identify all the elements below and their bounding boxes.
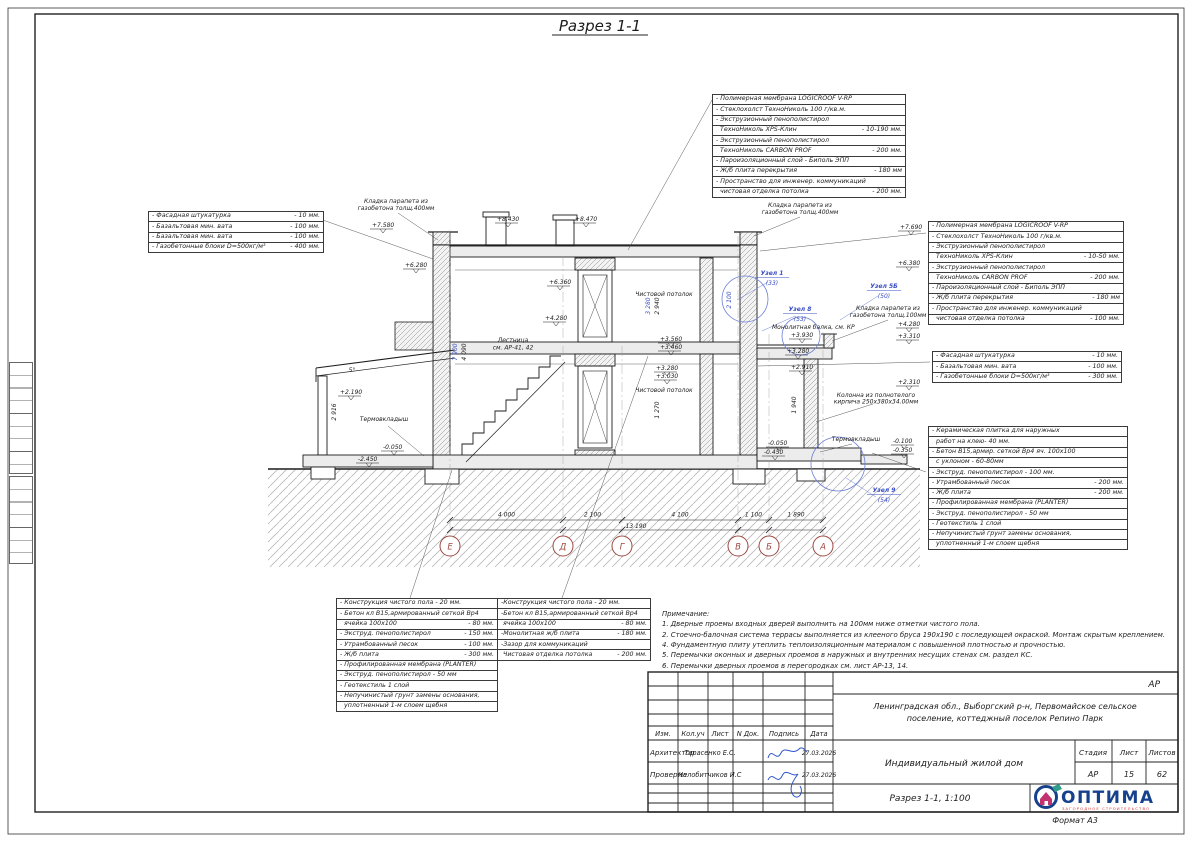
elevation-flag-icon [583,223,589,227]
dimension-text: 2 100 [584,512,601,519]
dimension-text: 1 270 [654,401,661,418]
annotation-line: -Бетон кл В15,армированный сеткой Вр4 [498,609,650,619]
elevation-value: +3.280 [787,348,809,355]
annotation-line: - Экструзионный пенополистирол [713,116,905,126]
elevation-value: +2.190 [340,389,362,396]
elevation-flag-icon [906,386,912,390]
dimension-text: 7 900 [452,343,459,360]
annotation-line: ТехноНиколь XPS-Клин- 10-50 мм. [929,253,1123,263]
list-col: Лист [1119,748,1139,757]
elevation-flag-icon [413,269,419,273]
elevation-flag-icon [391,451,397,455]
stage-val: АР [1087,770,1098,779]
drawing-name: Разрез 1-1, 1:100 [890,794,971,804]
stage-col: Стадия [1079,748,1108,757]
annotation-line: - Геотекстиль 1 слой [929,520,1127,530]
elevation-value: +6.380 [898,260,920,267]
annotation-line: - Базальтовая мин. вата- 100 мм. [149,222,323,232]
annotation-line: - Базальтовая мин. вата- 100 мм. [149,233,323,243]
annotation-line: - Профилированная мембрана (PLANTER) [337,661,497,671]
annotation-line: уплотненный 1-м слоем щебня [337,702,497,711]
annotation-line: -Зазор для коммуникаций [498,640,650,650]
annotation-line: - Фасадная штукатурка- 10 мм. [933,352,1121,362]
drawing-label: 5° [349,367,356,374]
drawing-label: Кладка парапета изгазобетона толщ.400мм [762,202,839,216]
elevation-value: +3.560 [660,336,682,343]
annotation-line: - Конструкция чистого пола - 20 мм. [337,599,497,609]
node-callout: Узел 1 [761,270,784,277]
annotation-line: - Стеклохолст ТехноНиколь 100 г/кв.м. [929,232,1123,242]
annotation-line: - Непучинистый грунт замены основания, [929,530,1127,540]
annotation-line: - Фасадная штукатурка- 10 мм. [149,212,323,222]
elevation-value: -0.450 [764,449,784,456]
dimension-text: 1 940 [791,396,798,413]
margin-stamp-table [9,476,33,564]
listov-val: 62 [1157,770,1167,779]
elevation-value: +6.360 [549,279,571,286]
dimension-text: 4 100 [671,512,688,519]
annotation-line: чистовая отделка потолка- 100 мм. [929,315,1123,324]
annotation-block-wall-left: - Фасадная штукатурка- 10 мм.- Базальтов… [148,211,324,253]
drawing-label: Колонна из полнотелогокирпича 250х380х34… [834,392,919,406]
elevation-flag-icon [557,286,563,290]
elevation-value: +6.280 [405,262,427,269]
notes-title: Примечание: [662,609,1184,619]
axis-label: Б [766,543,772,553]
annotation-line: с уклоном - 60-80мм [929,458,1127,468]
axis-label: Е [447,543,453,553]
drawing-label: Кладка парапета изгазобетона толщ.400мм [358,198,435,212]
elevation-value: +8.470 [575,216,597,223]
drawing-label: Термовкладыш [832,436,881,443]
annotation-line: - Бетон В15,армир. сеткой Вр4 яч. 100х10… [929,448,1127,458]
drawing-label: Монолитная балка, см. КР [772,324,855,331]
elevation-value: +7.580 [372,222,394,229]
annotation-block-roof-top: - Полимерная мембрана LOGICROOF V-RP- Ст… [712,94,906,198]
dimension-text: 2 940 [654,297,661,314]
annotation-line: ТехноНиколь XPS-Клин- 10-190 мм. [713,126,905,136]
annotation-line: работ на клею- 40 мм. [929,437,1127,447]
elevation-flag-icon [799,339,805,343]
annotation-line: - Газобетонные блоки D=500кг/м³- 300 мм. [933,373,1121,382]
dimension-text: 4 000 [498,512,515,519]
col-podpis: Подпись [769,730,799,738]
annotation-line: - Экструд. пенополистирол - 50 мм [337,671,497,681]
row2-name: Челобитчиков И.С [679,771,742,779]
elevation-value: +4.280 [545,315,567,322]
format-label: Формат А3 [1052,816,1098,825]
elevation-flag-icon [553,322,559,326]
row1-name: Тарасенко Е.С. [684,749,735,757]
annotation-block-roof-right: - Полимерная мембрана LOGICROOF V-RP- Ст… [928,221,1124,325]
elevation-flag-icon [380,229,386,233]
elevation-value: -0.100 [893,438,913,445]
row2-date: 27.03.2026 [802,772,837,779]
drawing-label: Лестницасм. АР-41, 42 [493,337,534,352]
dimension-text: 3 280 [645,297,652,314]
annotation-line: - Базальтовая мин. вата- 100 мм. [933,362,1121,372]
annotation-line: ячейка 100х100- 80 мм. [337,620,497,630]
dimension-text: 4 090 [461,343,468,360]
row1-date: 27.03.2026 [802,750,837,757]
annotation-line: Чистовая отделка потолка- 200 мм. [498,650,650,659]
annotation-line: -Конструкция чистого пола - 20 мм. [498,599,650,609]
note-item: 2. Стоечно-балочная система террасы выпо… [662,630,1184,640]
node-callout: Узел 5Б [870,283,898,290]
section-drawing: Разрез 1-1 [0,0,1190,841]
axis-label: В [735,543,741,553]
annotation-line: чистовая отделка потолка- 200 мм. [713,188,905,197]
drawing-sheet: Разрез 1-1 [0,0,1190,841]
elevation-value: -0.350 [893,447,913,454]
elevation-flag-icon [906,267,912,271]
annotation-line: - Геотекстиль 1 слой [337,681,497,691]
node-number: (33) [766,280,778,287]
annotation-line: -Монолитная ж/б плита- 180 мм. [498,630,650,640]
annotation-line: - Экструд. пенополистирол - 50 мм [929,509,1127,519]
logo-name: ОПТИМА [1061,788,1155,808]
annotation-line: - Экструд. пенополистирол- 150 мм. [337,630,497,640]
listov-col: Листов [1147,748,1175,757]
note-item: 1. Дверные проемы входных дверей выполни… [662,619,1184,629]
notes: Примечание: 1. Дверные проемы входных дв… [662,609,1184,671]
elevation-value: -0.050 [383,444,403,451]
annotation-line: - Ж/б плита- 300 мм. [337,650,497,660]
annotation-line: - Утрамбованный песок- 200 мм. [929,478,1127,488]
annotation-line: - Полимерная мембрана LOGICROOF V-RP [929,222,1123,232]
annotation-line: - Непучинистый грунт замены основания, [337,692,497,702]
elevation-flag-icon [906,328,912,332]
notes-list: 1. Дверные проемы входных дверей выполни… [662,619,1184,671]
note-item: 6. Перемычки дверных проемов в перегород… [662,661,1184,671]
col-list: Лист [711,730,730,738]
elevation-value: +3.460 [660,344,682,351]
annotation-line: ТехноНиколь CARBON PROF- 200 мм. [929,273,1123,283]
annotation-line: - Экструзионный пенополистирол [713,136,905,146]
project-location-line2: поселение, коттеджный поселок Репино Пар… [907,714,1104,723]
annotation-line: - Ж/б плита перекрытия- 180 мм [713,167,905,177]
annotation-line: - Стеклохолст ТехноНиколь 100 г/кв.м. [713,105,905,115]
axis-label: А [819,543,826,553]
annotation-block-floor-inter: -Конструкция чистого пола - 20 мм.-Бетон… [497,598,651,661]
logo-door-icon [1045,801,1049,805]
annotation-line: - Ж/б плита- 200 мм. [929,489,1127,499]
annotation-line: - Ж/б плита перекрытия- 180 мм [929,294,1123,304]
dimension-text: 1 100 [745,512,762,519]
annotation-block-floor-ground: - Конструкция чистого пола - 20 мм.- Бет… [336,598,498,712]
axis-label: Д [559,543,567,553]
elevation-flag-icon [348,396,354,400]
annotation-line: ячейка 100х100- 80 мм. [498,620,650,630]
logo-subtitle: ЗАГОРОДНОЕ СТРОИТЕЛЬСТВО [1062,806,1150,811]
annotation-block-terrace-right: - Керамическая плитка для наружных работ… [928,426,1128,550]
node-number: (50) [878,293,890,300]
elevation-value: +8.430 [497,216,519,223]
annotation-line: - Экструзионный пенополистирол [929,263,1123,273]
page-title: Разрез 1-1 [559,17,641,35]
dimension-total: 13 190 [626,523,647,530]
elevation-value: +2.910 [791,364,813,371]
elevation-value: +2.310 [898,379,920,386]
elevation-value: +4.280 [898,321,920,328]
annotation-line: - Профилированная мембрана (PLANTER) [929,499,1127,509]
annotation-line: уплотненный 1-м слоем щебня [929,540,1127,549]
margin-stamp-table [9,362,33,474]
elevation-flag-icon [906,340,912,344]
node-number: (54) [878,497,890,504]
list-val: 15 [1124,770,1134,779]
dimension-text: 2 916 [331,403,338,420]
elevation-value: +7.690 [900,224,922,231]
annotation-line: - Керамическая плитка для наружных [929,427,1127,437]
elevation-value: +3.930 [791,332,813,339]
node-callout: Узел 9 [873,487,896,494]
node-number: (53) [794,316,806,323]
note-item: 5. Перемычки оконных и дверных проемов в… [662,650,1184,660]
elevation-value: +3.310 [898,333,920,340]
optima-logo: ОПТИМА ЗАГОРОДНОЕ СТРОИТЕЛЬСТВО [1036,784,1155,811]
dimension-text: 2 100 [726,291,733,308]
col-izm: Изм. [655,730,671,738]
drawing-label: Чистовой потолок [635,387,693,394]
drawing-label: Термовкладыш [360,416,409,423]
node-callout: Узел 8 [789,306,812,313]
annotation-line: - Утрамбованный песок- 100 мм. [337,640,497,650]
annotation-line: - Пароизоляционный слой - Биполь ЭПП [929,284,1123,294]
annotation-line: - Пароизоляционный слой - Биполь ЭПП [713,157,905,167]
annotation-line: - Пространство для инженер. коммуникаций [929,304,1123,314]
elevation-flag-icon [664,380,670,384]
note-item: 4. Фундаментную плиту утеплить теплоизол… [662,640,1184,650]
annotation-line: - Бетон кл В15,армированный сеткой Вр4 [337,609,497,619]
drawing-label: Чистовой потолок [635,291,693,298]
dimension-text: 1 890 [787,512,804,519]
doc-code: АР [1147,680,1160,690]
annotation-block-wall-right: - Фасадная штукатурка- 10 мм.- Базальтов… [932,351,1122,383]
drawing-label: Кладка парапета изгазобетона толщ.100мм [850,305,927,319]
elevation-value: -2.450 [358,456,378,463]
project-location-line1: Ленинградская обл., Выборгский р-н, Перв… [872,702,1136,711]
col-ndok: N Док. [737,730,760,738]
elevation-value: -0.050 [768,440,788,447]
annotation-line: - Экструд. пенополистирол - 100 мм. [929,468,1127,478]
annotation-line: - Газобетонные блоки D=500кг/м³- 400 мм. [149,243,323,252]
annotation-line: - Пространство для инженер. коммуникаций [713,177,905,187]
annotation-line: - Экструзионный пенополистирол [929,243,1123,253]
col-data: Дата [809,730,827,738]
col-koluch: Кол.уч [681,730,704,738]
annotation-line: - Полимерная мембрана LOGICROOF V-RP [713,95,905,105]
object-name: Индивидуальный жилой дом [885,759,1023,769]
elevation-value: +3.030 [656,373,678,380]
elevation-value: +3.280 [656,365,678,372]
annotation-line: ТехноНиколь CARBON PROF- 200 мм. [713,146,905,156]
